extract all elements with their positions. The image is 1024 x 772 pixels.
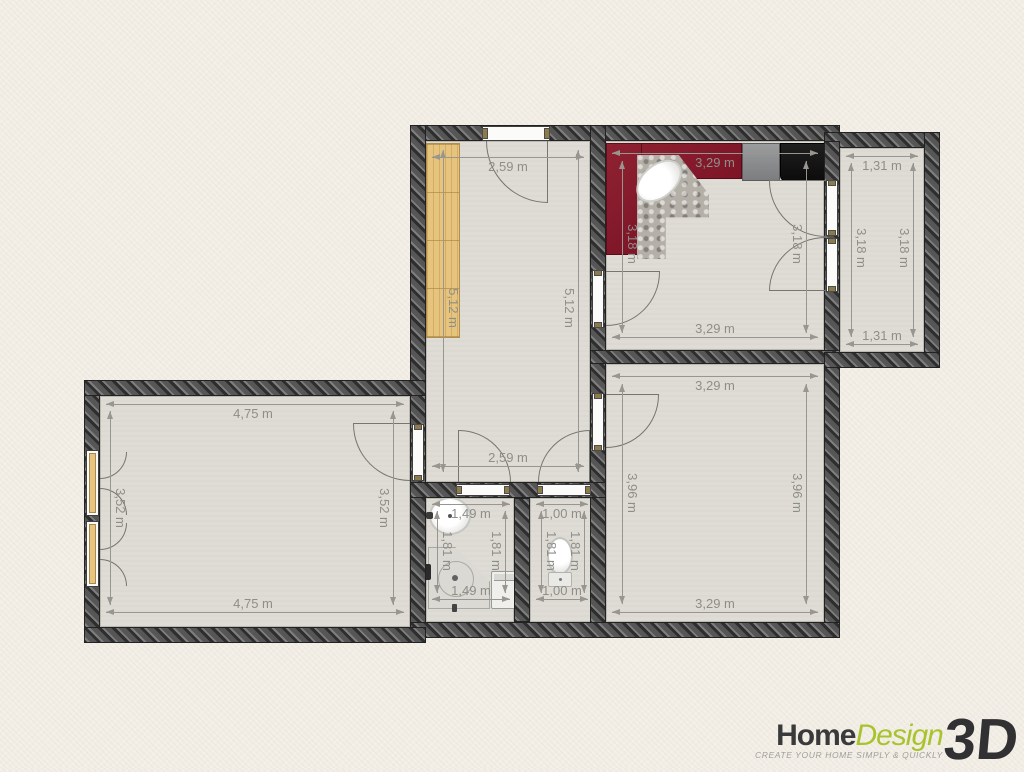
floor-plan: 2,59 m 2,59 m 5,12 m 5,12 m 3,29 m 3,29 … [0, 0, 1024, 768]
shower-handle [452, 604, 457, 612]
wall-pantry-right[interactable] [924, 132, 940, 368]
dim-line [536, 599, 588, 600]
dim-line [612, 153, 818, 154]
living-window-lower[interactable] [86, 521, 99, 587]
window-pane [89, 524, 96, 584]
door-hall-bedroom-leaf [606, 394, 659, 395]
dim-label-bathroom-top: 1,49 m [451, 506, 491, 521]
stove[interactable] [742, 143, 780, 181]
door-kitchen-pantry-upper[interactable] [826, 180, 838, 236]
shower-drain [452, 575, 458, 581]
dim-line [846, 344, 918, 345]
wall-pantry-top[interactable] [824, 132, 940, 148]
dim-label-pantry-bottom: 1,31 m [862, 328, 902, 343]
dim-line [432, 466, 584, 467]
window-pane [89, 453, 96, 513]
dim-label-pantry-right: 3,18 m [897, 228, 912, 268]
dim-line [913, 163, 914, 337]
front-door-leaf [547, 141, 548, 203]
dim-label-bedroom-right: 3,96 m [790, 473, 805, 513]
dim-label-pantry-left: 3,18 m [854, 228, 869, 268]
dim-line [106, 404, 404, 405]
dim-label-wc-right: 1,81 m [568, 531, 583, 571]
wall-pantry-bottom[interactable] [824, 352, 940, 368]
door-living-hall[interactable] [412, 424, 424, 481]
dim-line [505, 511, 506, 593]
dim-line [806, 161, 807, 333]
dim-label-kitchen-left: 3,18 m [625, 224, 640, 264]
door-kitchen-pantry-lower[interactable] [826, 238, 838, 292]
dim-label-wc-top: 1,00 m [542, 506, 582, 521]
wall-top-main[interactable] [410, 125, 840, 141]
wall-kitchen-bedroom[interactable] [590, 350, 840, 364]
dim-line [437, 511, 438, 593]
dim-line [443, 150, 444, 472]
sink-faucet [426, 512, 433, 519]
dim-label-hall-top: 2,59 m [488, 159, 528, 174]
wall-living-top[interactable] [84, 380, 426, 396]
wall-bottom-right[interactable] [410, 622, 840, 638]
toilet-button [559, 578, 562, 581]
logo-home-text: Home [776, 719, 855, 752]
dim-line [622, 384, 623, 604]
dim-label-wc-left: 1,81 m [544, 531, 559, 571]
door-living-hall-leaf [353, 423, 410, 424]
door-hall-wc[interactable] [537, 484, 591, 496]
door-hall-kitchen[interactable] [592, 270, 604, 328]
door-hall-bathroom[interactable] [456, 484, 510, 496]
dim-line [110, 411, 111, 605]
dim-line [806, 384, 807, 604]
dim-line [106, 612, 404, 613]
dim-label-living-left: 3,52 m [113, 488, 128, 528]
dim-label-bathroom-left: 1,81 m [440, 531, 455, 571]
dim-label-bedroom-left: 3,96 m [625, 473, 640, 513]
dim-line [846, 156, 918, 157]
door-hall-kitchen-leaf [606, 271, 660, 272]
dim-line [622, 161, 623, 333]
dim-line [432, 504, 510, 505]
dim-label-wc-bottom: 1,00 m [542, 583, 582, 598]
dim-label-living-right: 3,52 m [377, 488, 392, 528]
door-kitchen-pantry-upper-leaf [769, 180, 826, 181]
dim-label-bathroom-bottom: 1,49 m [451, 583, 491, 598]
dim-label-kitchen-top: 3,29 m [695, 155, 735, 170]
dim-label-living-top: 4,75 m [233, 406, 273, 421]
dim-line [536, 504, 588, 505]
dim-line [612, 376, 818, 377]
wall-living-bottom[interactable] [84, 627, 426, 643]
door-kitchen-pantry-lower-leaf [769, 290, 826, 291]
logo-3d-text: 3D [942, 716, 1020, 764]
dim-line [432, 599, 510, 600]
wall-bath-wc[interactable] [514, 498, 530, 622]
dim-line [393, 411, 394, 605]
logo-design-text: Design [855, 719, 942, 752]
dim-label-hall-left: 5,12 m [446, 288, 461, 328]
door-hall-bedroom[interactable] [592, 393, 604, 451]
logo-wordmark: HomeDesign CREATE YOUR HOME SIMPLY & QUI… [755, 719, 943, 764]
dim-label-pantry-top: 1,31 m [862, 158, 902, 173]
wall-bedroom-right[interactable] [824, 350, 840, 638]
dim-label-hall-right: 5,12 m [562, 288, 577, 328]
front-door[interactable] [482, 126, 550, 141]
dim-line [432, 157, 584, 158]
dim-line [612, 612, 818, 613]
dim-label-kitchen-right: 3,18 m [790, 224, 805, 264]
door-hall-wc-leaf [589, 430, 590, 482]
dim-label-living-bottom: 4,75 m [233, 596, 273, 611]
dim-line [578, 150, 579, 472]
dim-line [612, 337, 818, 338]
dim-label-bathroom-right: 1,81 m [489, 531, 504, 571]
door-hall-bathroom-leaf [458, 430, 459, 482]
dim-line [541, 511, 542, 593]
wall-hall-right[interactable] [590, 125, 606, 638]
dim-label-hall-bottom: 2,59 m [488, 450, 528, 465]
dim-label-bedroom-top: 3,29 m [695, 378, 735, 393]
dim-line [584, 511, 585, 593]
dim-line [851, 163, 852, 337]
app-logo: HomeDesign CREATE YOUR HOME SIMPLY & QUI… [755, 716, 1018, 764]
living-window-upper[interactable] [86, 450, 99, 516]
logo-tagline: CREATE YOUR HOME SIMPLY & QUICKLY [755, 750, 943, 760]
dim-label-kitchen-bottom: 3,29 m [695, 321, 735, 336]
dim-label-bedroom-bottom: 3,29 m [695, 596, 735, 611]
